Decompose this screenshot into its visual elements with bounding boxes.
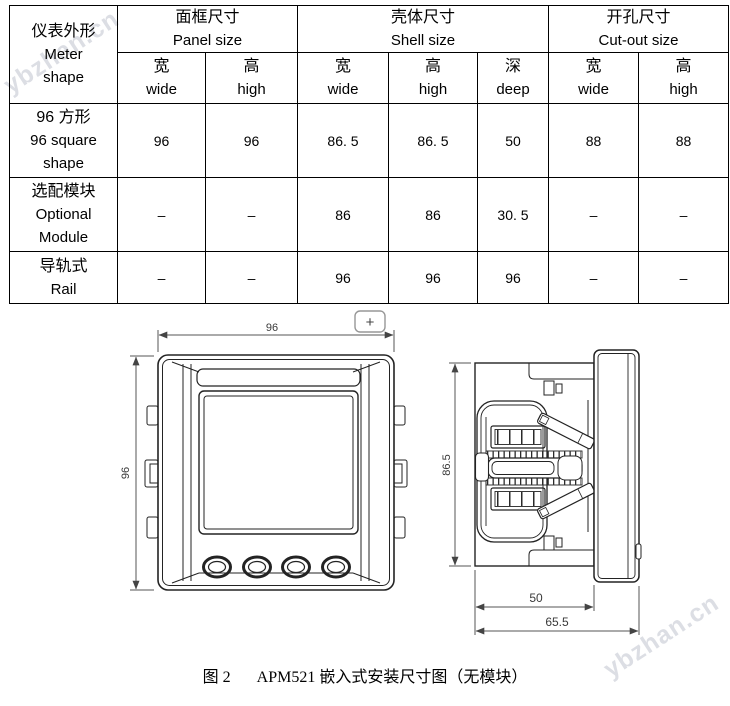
header-en: Shell size (298, 29, 548, 52)
col-header-shell-size: 壳体尺寸 Shell size (298, 6, 549, 53)
installation-dimension-drawing: + 96 96 (0, 304, 730, 656)
subcol-panel-wide: 宽wide (118, 53, 206, 104)
row-label-rail: 导轨式 Rail (10, 252, 118, 304)
value-cell: 86. 5 (389, 104, 478, 178)
table-row: 96 方形 96 square shape 96 96 86. 5 86. 5 … (10, 104, 729, 178)
value-cell: – (549, 252, 639, 304)
table-row: 导轨式 Rail – – 96 96 96 – – (10, 252, 729, 304)
row-label-optional-module: 选配模块 Optional Module (10, 178, 118, 252)
subcol-panel-high: 高high (206, 53, 298, 104)
subcol-shell-deep: 深deep (478, 53, 549, 104)
value-cell: – (118, 178, 206, 252)
row-label-96-square: 96 方形 96 square shape (10, 104, 118, 178)
header-en: Meter (10, 43, 117, 66)
value-cell: – (549, 178, 639, 252)
header-en: Cut-out size (549, 29, 728, 52)
value-cell: 86 (389, 178, 478, 252)
col-header-cutout-size: 开孔尺寸 Cut-out size (549, 6, 729, 53)
datasheet-page: ybzhan.cn ybzhan.cn 仪表外形 Meter shape 面框尺… (0, 0, 730, 706)
figure-number: 图 2 (203, 669, 231, 686)
dim-side-total-depth: 65.5 (545, 615, 569, 629)
header-en: Panel size (118, 29, 297, 52)
plus-mark: + (355, 311, 385, 332)
header-zh: 面框尺寸 (118, 6, 297, 29)
value-cell: 96 (478, 252, 549, 304)
header-zh: 开孔尺寸 (549, 6, 728, 29)
col-header-panel-size: 面框尺寸 Panel size (118, 6, 298, 53)
header-zh: 仪表外形 (10, 20, 117, 43)
dim-side-height: 86.5 (441, 454, 453, 475)
dim-front-width: 96 (266, 322, 278, 334)
value-cell: 96 (298, 252, 389, 304)
col-header-meter-shape: 仪表外形 Meter shape (10, 6, 118, 104)
side-view-drawing (475, 350, 641, 582)
value-cell: 86 (298, 178, 389, 252)
value-cell: 96 (206, 104, 298, 178)
subcol-cutout-wide: 宽wide (549, 53, 639, 104)
value-cell: 50 (478, 104, 549, 178)
side-bezel (594, 350, 641, 582)
subcol-shell-high: 高high (389, 53, 478, 104)
figure-caption: 图 2APM521 嵌入式安装尺寸图（无模块） (0, 663, 730, 687)
table-header-subcols: 宽wide 高high 宽wide 高high 深deep 宽wide 高hig… (10, 53, 729, 104)
value-cell: 96 (118, 104, 206, 178)
table-row: 选配模块 Optional Module – – 86 86 30. 5 – – (10, 178, 729, 252)
value-cell: – (206, 252, 298, 304)
header-en: shape (10, 66, 117, 89)
subcol-cutout-high: 高high (639, 53, 729, 104)
value-cell: – (639, 178, 729, 252)
value-cell: 30. 5 (478, 178, 549, 252)
dim-front-height: 96 (120, 467, 132, 479)
table-header-groups: 仪表外形 Meter shape 面框尺寸 Panel size 壳体尺寸 Sh… (10, 6, 729, 53)
dim-side-depth: 50 (529, 591, 543, 605)
plus-symbol: + (366, 314, 375, 331)
value-cell: – (639, 252, 729, 304)
header-zh: 壳体尺寸 (298, 6, 548, 29)
value-cell: – (206, 178, 298, 252)
figure-title: APM521 嵌入式安装尺寸图（无模块） (257, 669, 528, 686)
value-cell: 96 (389, 252, 478, 304)
subcol-shell-wide: 宽wide (298, 53, 389, 104)
front-view-drawing (145, 355, 407, 590)
value-cell: 86. 5 (298, 104, 389, 178)
value-cell: 88 (639, 104, 729, 178)
value-cell: – (118, 252, 206, 304)
dimension-table: 仪表外形 Meter shape 面框尺寸 Panel size 壳体尺寸 Sh… (9, 5, 729, 304)
value-cell: 88 (549, 104, 639, 178)
